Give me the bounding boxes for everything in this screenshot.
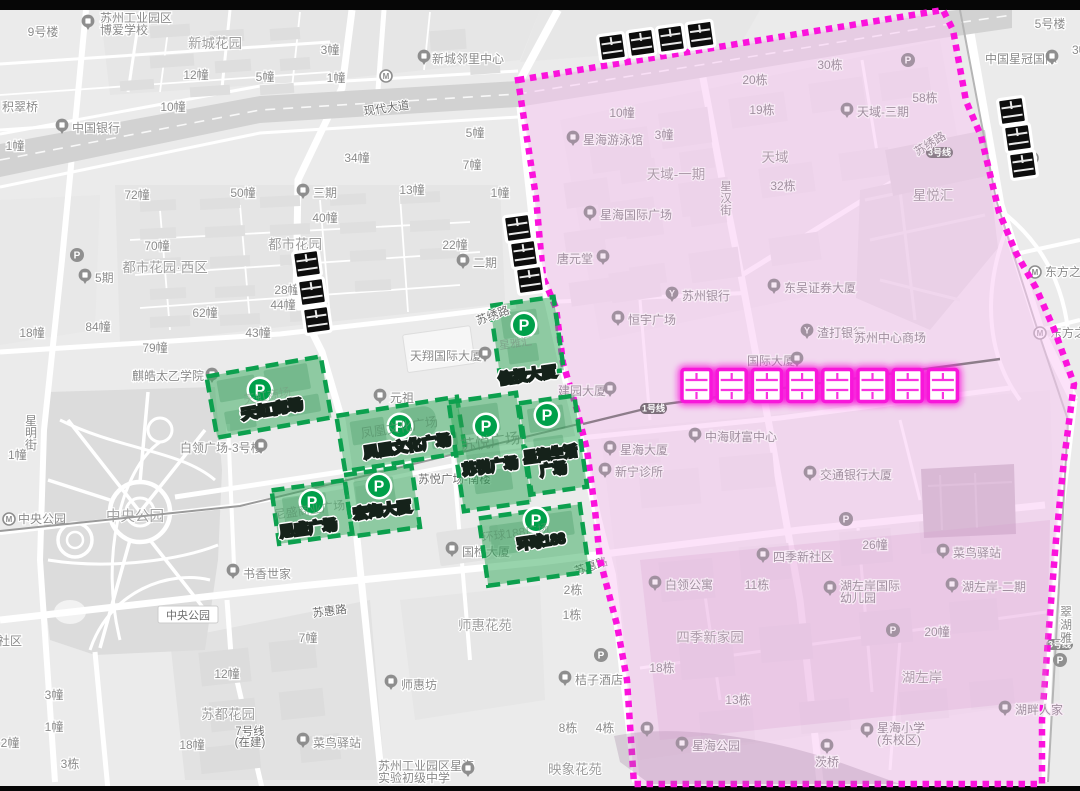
svg-text:3幢: 3幢 xyxy=(45,687,64,702)
svg-text:湖: 湖 xyxy=(1060,617,1072,632)
svg-text:菜鸟驿站: 菜鸟驿站 xyxy=(953,545,1001,560)
svg-text:桔子酒店: 桔子酒店 xyxy=(575,673,623,687)
svg-text:20栋: 20栋 xyxy=(742,72,767,87)
svg-text:18栋: 18栋 xyxy=(649,660,674,675)
svg-text:苏都花园: 苏都花园 xyxy=(201,707,255,722)
svg-text:5号楼: 5号楼 xyxy=(1035,16,1066,31)
svg-text:湖左岸: 湖左岸 xyxy=(902,670,943,685)
svg-text:70幢: 70幢 xyxy=(144,238,169,253)
svg-text:19栋: 19栋 xyxy=(749,102,774,117)
svg-text:翠: 翠 xyxy=(1060,605,1072,619)
svg-text:星海国际广场: 星海国际广场 xyxy=(600,207,672,222)
svg-text:星海公园: 星海公园 xyxy=(692,738,740,753)
svg-text:22幢: 22幢 xyxy=(442,237,467,252)
svg-text:天域: 天域 xyxy=(762,150,789,165)
svg-text:2幢: 2幢 xyxy=(1,735,20,750)
svg-text:62幢: 62幢 xyxy=(192,305,217,320)
svg-text:苏州银行: 苏州银行 xyxy=(682,289,730,303)
svg-text:四季新社区: 四季新社区 xyxy=(773,549,833,564)
svg-text:5期: 5期 xyxy=(95,271,114,285)
svg-text:30栋: 30栋 xyxy=(817,57,842,72)
svg-text:社区: 社区 xyxy=(0,633,22,648)
svg-text:师惠花苑: 师惠花苑 xyxy=(458,618,512,633)
svg-text:幼儿园: 幼儿园 xyxy=(840,591,876,605)
svg-text:星悦汇: 星悦汇 xyxy=(913,188,954,203)
svg-text:东方之: 东方之 xyxy=(1045,264,1080,279)
svg-text:1幢: 1幢 xyxy=(491,185,510,200)
svg-text:元祖: 元祖 xyxy=(390,390,414,405)
svg-text:国际大厦: 国际大厦 xyxy=(747,354,795,368)
svg-text:(在建): (在建) xyxy=(235,735,266,749)
svg-text:28幢: 28幢 xyxy=(274,282,299,297)
svg-text:10幢: 10幢 xyxy=(160,99,185,114)
svg-text:汉: 汉 xyxy=(720,192,732,205)
svg-text:星海大厦: 星海大厦 xyxy=(620,442,668,457)
svg-text:白领公寓: 白领公寓 xyxy=(665,577,713,592)
svg-text:11栋: 11栋 xyxy=(745,577,769,592)
svg-text:3幢: 3幢 xyxy=(655,127,674,142)
svg-text:湖左岸-二期: 湖左岸-二期 xyxy=(962,579,1026,594)
svg-text:书香世家: 书香世家 xyxy=(243,566,291,581)
svg-text:3幢: 3幢 xyxy=(321,42,340,57)
svg-text:师惠坊: 师惠坊 xyxy=(401,677,437,692)
svg-text:三期: 三期 xyxy=(313,186,337,200)
svg-text:7号线: 7号线 xyxy=(235,724,265,738)
svg-text:博爱学校: 博爱学校 xyxy=(100,22,148,37)
svg-text:8栋: 8栋 xyxy=(559,720,578,735)
svg-text:实验初级中学: 实验初级中学 xyxy=(378,770,450,785)
svg-text:43幢: 43幢 xyxy=(245,325,270,340)
svg-text:东吴证券大厦: 东吴证券大厦 xyxy=(784,280,856,295)
svg-text:街: 街 xyxy=(720,203,732,217)
svg-text:79幢: 79幢 xyxy=(142,340,167,355)
svg-text:(东校区): (东校区) xyxy=(877,732,921,747)
svg-text:3幢: 3幢 xyxy=(1072,42,1080,57)
svg-text:34幢: 34幢 xyxy=(344,150,369,165)
svg-text:街: 街 xyxy=(25,438,37,452)
svg-text:5幢: 5幢 xyxy=(256,69,275,84)
svg-text:1幢: 1幢 xyxy=(6,138,25,153)
svg-text:40幢: 40幢 xyxy=(312,210,337,225)
svg-text:1栋: 1栋 xyxy=(563,607,582,622)
svg-text:7幢: 7幢 xyxy=(463,157,482,172)
svg-text:32栋: 32栋 xyxy=(770,178,795,193)
svg-text:中央公园: 中央公园 xyxy=(166,609,210,622)
svg-text:二期: 二期 xyxy=(473,256,497,270)
svg-text:18幢: 18幢 xyxy=(19,325,44,340)
svg-text:中海财富中心: 中海财富中心 xyxy=(705,429,777,444)
svg-text:新宁诊所: 新宁诊所 xyxy=(615,464,663,479)
svg-text:中央公园: 中央公园 xyxy=(18,511,66,526)
svg-text:中国银行: 中国银行 xyxy=(72,120,120,135)
svg-text:5幢: 5幢 xyxy=(466,125,485,140)
svg-text:1幢: 1幢 xyxy=(327,70,346,85)
svg-text:7幢: 7幢 xyxy=(299,630,318,645)
svg-text:1幢: 1幢 xyxy=(45,719,64,734)
svg-text:唐元堂: 唐元堂 xyxy=(557,251,593,266)
svg-text:映象花苑: 映象花苑 xyxy=(548,762,602,777)
svg-text:恒宇广场: 恒宇广场 xyxy=(628,313,676,327)
svg-text:13栋: 13栋 xyxy=(725,692,750,707)
svg-text:1幢: 1幢 xyxy=(8,447,27,462)
svg-text:雅: 雅 xyxy=(1060,630,1072,645)
svg-text:星: 星 xyxy=(720,180,732,193)
svg-text:44幢: 44幢 xyxy=(270,297,295,312)
svg-text:天域-一期: 天域-一期 xyxy=(647,167,706,182)
svg-text:茨桥: 茨桥 xyxy=(815,755,839,769)
svg-text:4栋: 4栋 xyxy=(596,720,615,735)
svg-text:湖畔人家: 湖畔人家 xyxy=(1015,702,1063,717)
svg-text:12幢: 12幢 xyxy=(183,67,208,82)
svg-text:麒皓太乙学院: 麒皓太乙学院 xyxy=(132,368,204,383)
svg-text:1号线: 1号线 xyxy=(642,403,665,414)
svg-text:天域-三期: 天域-三期 xyxy=(857,105,909,119)
svg-text:26幢: 26幢 xyxy=(862,537,887,552)
svg-text:58栋: 58栋 xyxy=(912,90,937,105)
svg-text:9号楼: 9号楼 xyxy=(28,24,59,39)
svg-text:星海游泳馆: 星海游泳馆 xyxy=(583,132,643,147)
svg-text:白领广场-3号楼: 白领广场-3号楼 xyxy=(180,440,263,455)
svg-text:18幢: 18幢 xyxy=(179,737,204,752)
svg-text:84幢: 84幢 xyxy=(85,319,110,334)
svg-text:12幢: 12幢 xyxy=(214,666,239,681)
svg-text:50幢: 50幢 xyxy=(230,185,255,200)
svg-text:天翔国际大厦: 天翔国际大厦 xyxy=(410,349,482,363)
svg-text:2栋: 2栋 xyxy=(564,582,583,597)
svg-text:都市花园·西区: 都市花园·西区 xyxy=(122,259,208,275)
svg-text:菜鸟驿站: 菜鸟驿站 xyxy=(313,735,361,750)
svg-text:3栋: 3栋 xyxy=(61,756,80,771)
svg-text:四季新家园: 四季新家园 xyxy=(676,629,744,645)
svg-text:10幢: 10幢 xyxy=(609,105,634,120)
svg-text:交通银行大厦: 交通银行大厦 xyxy=(820,467,892,482)
svg-text:72幢: 72幢 xyxy=(124,187,149,202)
svg-text:新城邻里中心: 新城邻里中心 xyxy=(432,51,504,66)
svg-text:13幢: 13幢 xyxy=(399,182,424,197)
svg-text:20幢: 20幢 xyxy=(924,624,949,639)
svg-text:苏州中心商场: 苏州中心商场 xyxy=(854,330,926,345)
svg-text:新城花园: 新城花园 xyxy=(188,36,242,51)
svg-text:积翠桥: 积翠桥 xyxy=(2,100,38,114)
